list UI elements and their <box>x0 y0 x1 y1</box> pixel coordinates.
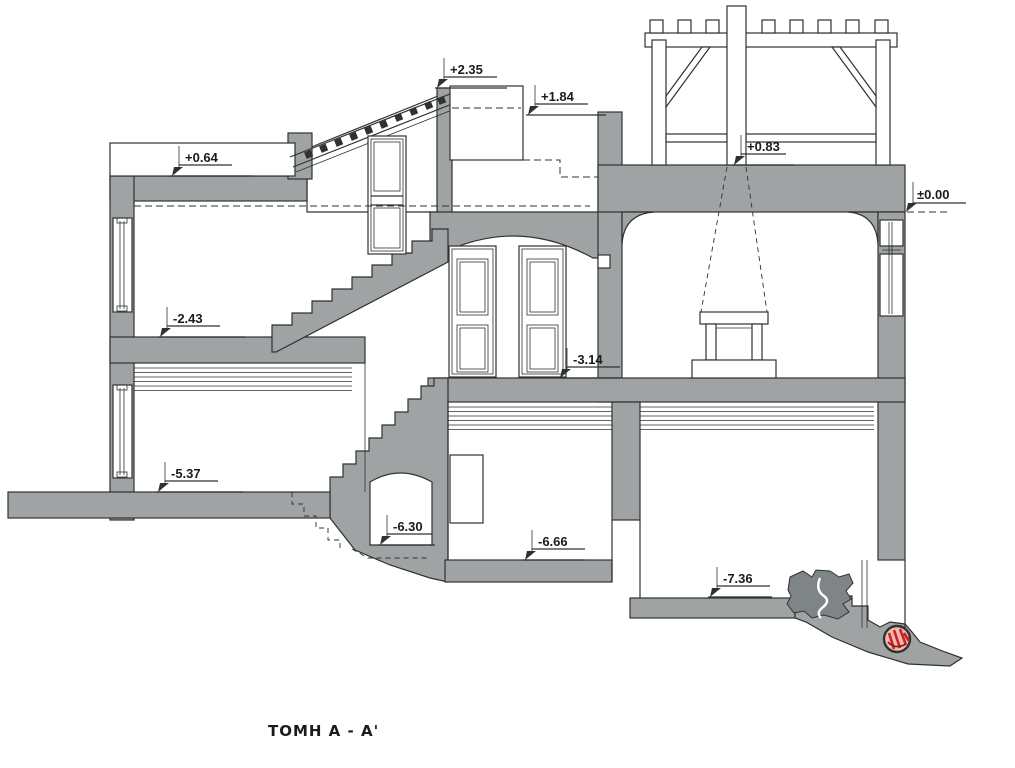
rock-outcrop <box>787 570 853 619</box>
floor-slab-minus-6-66 <box>445 560 612 582</box>
upstand-wall <box>450 86 523 160</box>
drawing-title: ΤΟΜΗ Α - Α' <box>268 722 379 740</box>
elevation-label: +0.64 <box>185 150 219 165</box>
stair-window <box>368 136 406 254</box>
elevation-label: -3.14 <box>573 352 603 367</box>
pergola-center-post <box>727 6 746 165</box>
section-drawing: +2.35 +1.84 +0.64 +0.83 ±0.00 -2.43 <box>0 0 1015 768</box>
elevation-label: -2.43 <box>173 311 203 326</box>
elevation-label: +0.83 <box>747 139 780 154</box>
elevation-label: +2.35 <box>450 62 483 77</box>
panel-door-left <box>449 246 496 377</box>
pergola-post-left <box>652 40 666 165</box>
drain-highlight <box>884 626 910 652</box>
pergola-beam <box>645 33 897 47</box>
drawing-sheet: +2.35 +1.84 +0.64 +0.83 ±0.00 -2.43 <box>0 0 1015 768</box>
floor-slab-minus-2-43 <box>110 337 365 363</box>
ground-band-left <box>8 492 330 518</box>
elevation-label: -7.36 <box>723 571 753 586</box>
basement-niche <box>450 455 483 523</box>
pergola-rail-left <box>666 134 727 142</box>
elevation-label: -5.37 <box>171 466 201 481</box>
elevation-label: -6.30 <box>393 519 423 534</box>
basement-pier <box>612 402 640 520</box>
left-wall-window-upper <box>113 218 132 312</box>
pergola-rafter-ends <box>650 20 888 33</box>
beam-pocket <box>598 255 610 268</box>
floor-slab-minus-7-36 <box>630 598 795 618</box>
elevation-label: +1.84 <box>541 89 575 104</box>
right-wall-windows <box>880 220 903 316</box>
panel-door-right <box>519 246 566 377</box>
elevation-label: ±0.00 <box>917 187 949 202</box>
floor-slab-minus-3-14 <box>428 378 905 402</box>
pergola-post-right <box>876 40 890 165</box>
upper-left-slab <box>110 176 307 201</box>
elevation-label: -6.66 <box>538 534 568 549</box>
left-wall-window-lower <box>113 385 132 478</box>
